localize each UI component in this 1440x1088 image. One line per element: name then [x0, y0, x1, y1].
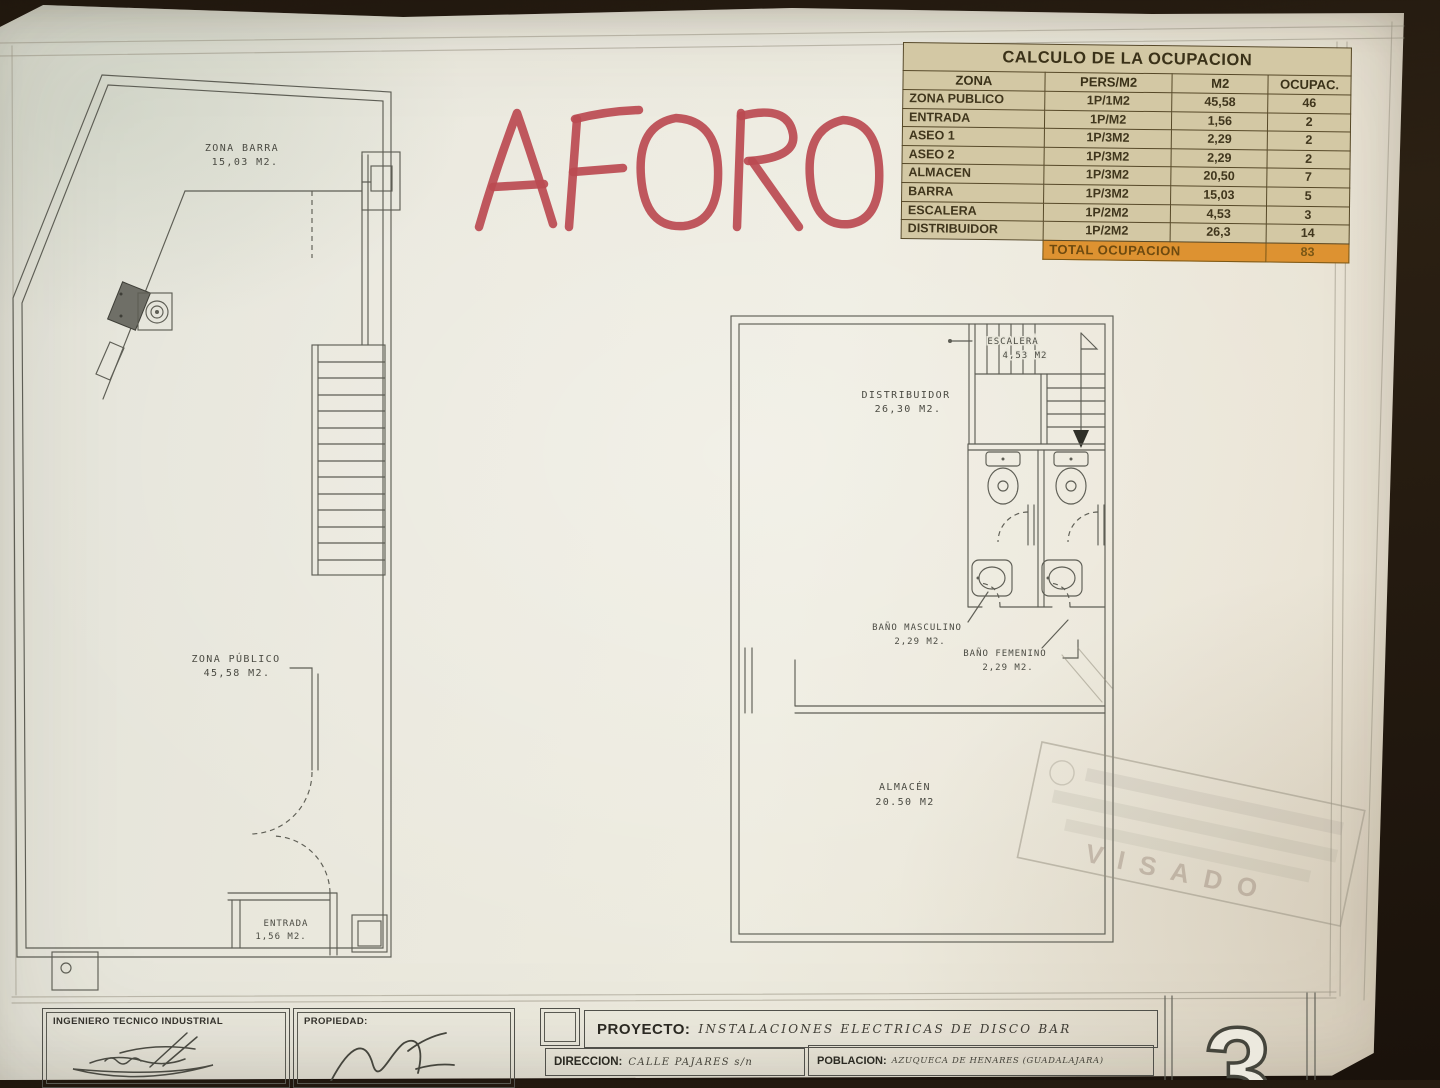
bano-masculino-label: BAÑO MASCULINO 2,29 M2.	[872, 592, 988, 647]
engineer-signature	[45, 1031, 285, 1081]
titleblock-project-box: PROYECTO: INSTALACIONES ELECTRICAS DE DI…	[584, 1010, 1158, 1048]
occupancy-zone-cell: BARRA	[902, 182, 1044, 202]
occupancy-value-cell: 1P/1M2	[1044, 91, 1172, 111]
floor-plan-ground: ZONA BARRA 15,03 M2. ZONA PÚBLICO 45,58 …	[13, 75, 400, 990]
svg-text:ZONA PÚBLICO: ZONA PÚBLICO	[191, 652, 280, 665]
svg-text:4,53 M2: 4,53 M2	[1003, 351, 1048, 361]
sink-icon	[972, 560, 1012, 596]
occupancy-col-header: OCUPAC.	[1268, 75, 1351, 95]
occupancy-zone-cell: ENTRADA	[902, 108, 1044, 128]
toilet-icon	[986, 452, 1020, 504]
occupancy-value-cell: 14	[1266, 224, 1349, 244]
occupancy-zone-cell: ESCALERA	[901, 201, 1043, 221]
occupancy-table: CALCULO DE LA OCUPACION ZONAPERS/M2M2OCU…	[900, 42, 1352, 264]
occupancy-value-cell: 2,29	[1172, 130, 1268, 150]
svg-text:ALMACÉN: ALMACÉN	[879, 780, 931, 793]
occupancy-value-cell: 45,58	[1172, 93, 1268, 113]
engineer-label: INGENIERO TECNICO INDUSTRIAL	[43, 1009, 289, 1027]
entrada-label: ENTRADA 1,56 M2.	[255, 919, 308, 942]
svg-text:DISTRIBUIDOR: DISTRIBUIDOR	[861, 390, 950, 401]
titleblock-town-box: POBLACION: AZUQUECA DE HENARES (GUADALAJ…	[808, 1045, 1154, 1076]
occupancy-value-cell: 1P/3M2	[1043, 184, 1171, 204]
property-signature	[296, 1029, 510, 1081]
blueprint-photo: ZONA BARRA 15,03 M2. ZONA PÚBLICO 45,58 …	[0, 0, 1440, 1080]
floor-plan-upper: ESCALERA 4,53 M2	[731, 316, 1113, 942]
zona-barra-label: ZONA BARRA 15,03 M2.	[205, 143, 279, 168]
occupancy-value-cell: 7	[1267, 168, 1350, 188]
zona-publico-label: ZONA PÚBLICO 45,58 M2.	[191, 652, 280, 679]
occupancy-value-cell: 46	[1268, 94, 1351, 114]
svg-text:1,56 M2.: 1,56 M2.	[255, 932, 306, 942]
svg-text:2,29 M2.: 2,29 M2.	[894, 637, 945, 647]
svg-text:20.50 M2: 20.50 M2	[875, 797, 934, 808]
project-label: PROYECTO:	[597, 1021, 690, 1038]
occupancy-value-cell: 15,03	[1171, 186, 1267, 206]
occupancy-zone-cell: DISTRIBUIDOR	[901, 220, 1043, 240]
town-label: POBLACION:	[817, 1055, 887, 1067]
occupancy-zone-cell: ALMACEN	[902, 164, 1044, 184]
distribuidor-label: DISTRIBUIDOR 26,30 M2.	[861, 390, 950, 415]
bar-counter-fixture-icon	[108, 282, 172, 330]
occupancy-zone-cell: ZONA PUBLICO	[903, 89, 1045, 109]
titleblock-small-box	[540, 1008, 580, 1046]
occupancy-value-cell: 1P/2M2	[1043, 221, 1171, 241]
svg-text:BAÑO FEMENINO: BAÑO FEMENINO	[963, 648, 1046, 659]
occupancy-value-cell: 1P/3M2	[1044, 147, 1172, 167]
titleblock-address-box: DIRECCION: CALLE PAJARES s/n	[545, 1048, 805, 1076]
property-label: PROPIEDAD:	[294, 1009, 514, 1027]
svg-text:BAÑO MASCULINO: BAÑO MASCULINO	[872, 622, 962, 633]
address-value: CALLE PAJARES s/n	[628, 1057, 753, 1068]
toilet-icon	[1054, 452, 1088, 504]
stairs-down-arrow-icon	[1073, 430, 1089, 448]
ground-floor-stairs-icon	[312, 345, 385, 575]
occupancy-value-cell: 1P/M2	[1044, 110, 1172, 130]
occupancy-value-cell: 2	[1267, 131, 1350, 151]
occupancy-value-cell: 2	[1267, 150, 1350, 170]
occupancy-value-cell: 1,56	[1172, 111, 1268, 131]
svg-text:26,30 M2.: 26,30 M2.	[875, 404, 942, 415]
address-label: DIRECCION:	[554, 1056, 622, 1068]
occupancy-zone-cell: ASEO 2	[902, 145, 1044, 165]
occupancy-value-cell: 20,50	[1171, 167, 1267, 187]
almacen-label: ALMACÉN 20.50 M2	[875, 780, 934, 808]
occupancy-col-header: M2	[1172, 73, 1268, 93]
occupancy-value-cell: 1P/2M2	[1043, 203, 1171, 223]
bathrooms	[968, 444, 1105, 607]
occupancy-blank-cell	[901, 238, 1043, 259]
titleblock-engineer-box: INGENIERO TECNICO INDUSTRIAL	[42, 1008, 290, 1088]
escalera-label: ESCALERA 4,53 M2	[948, 337, 1047, 361]
occupancy-value-cell: 1P/3M2	[1044, 166, 1172, 186]
sheet-number: 3	[1204, 1002, 1272, 1080]
occupancy-total-label: TOTAL OCUPACION	[1043, 240, 1267, 262]
occupancy-value-cell: 5	[1267, 187, 1350, 207]
svg-text:ZONA BARRA: ZONA BARRA	[205, 143, 279, 154]
svg-text:15,03 M2.: 15,03 M2.	[212, 157, 279, 168]
occupancy-zone-cell: ASEO 1	[902, 127, 1044, 147]
occupancy-total-value: 83	[1266, 243, 1349, 263]
occupancy-col-header: ZONA	[903, 70, 1045, 91]
occupancy-value-cell: 1P/3M2	[1044, 128, 1172, 148]
occupancy-value-cell: 2	[1268, 112, 1351, 132]
svg-text:45,58 M2.: 45,58 M2.	[204, 668, 271, 679]
titleblock-property-box: PROPIEDAD:	[293, 1008, 515, 1088]
sheet-number-box: 3	[1165, 993, 1315, 1080]
bano-femenino-label: BAÑO FEMENINO 2,29 M2.	[963, 620, 1078, 673]
visado-stamp: VISADO	[1017, 742, 1364, 926]
occupancy-col-header: PERS/M2	[1045, 72, 1173, 93]
sink-icon	[1042, 560, 1082, 596]
svg-text:ESCALERA: ESCALERA	[987, 337, 1038, 347]
occupancy-value-cell: 3	[1266, 206, 1349, 226]
occupancy-value-cell: 26,3	[1170, 223, 1266, 243]
occupancy-value-cell: 4,53	[1171, 204, 1267, 224]
project-value: INSTALACIONES ELECTRICAS DE DISCO BAR	[698, 1022, 1071, 1036]
occupancy-value-cell: 2,29	[1171, 149, 1267, 169]
aforo-annotation: AFORO	[479, 110, 879, 227]
svg-text:2,29 M2.: 2,29 M2.	[982, 663, 1033, 673]
town-value: AZUQUECA DE HENARES (GUADALAJARA)	[892, 1056, 1104, 1066]
svg-text:ENTRADA: ENTRADA	[264, 919, 309, 929]
